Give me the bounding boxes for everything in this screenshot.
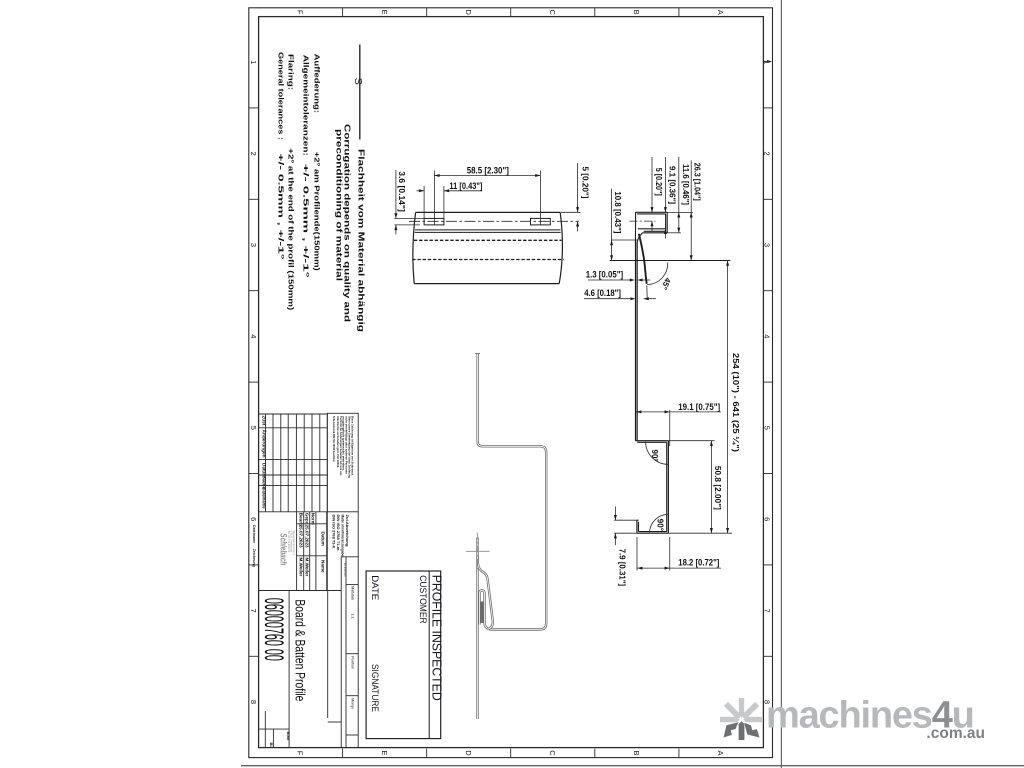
- svg-text:Datum: Datum: [321, 532, 326, 546]
- svg-text:06000760 00: 06000760 00: [259, 598, 289, 661]
- svg-text:Board & Batten Profile: Board & Batten Profile: [293, 599, 308, 701]
- svg-text:4.6 [0.18"]: 4.6 [0.18"]: [584, 288, 621, 299]
- svg-text:Maßstab: Maßstab: [351, 586, 355, 600]
- svg-text:preconditioning of material: preconditioning of material: [335, 129, 344, 281]
- svg-text:Schlebach: Schlebach: [279, 533, 289, 565]
- svg-text:Flaring:: Flaring:: [286, 54, 293, 90]
- svg-text:50.8 [2.00"]: 50.8 [2.00"]: [713, 466, 722, 510]
- svg-text:C: C: [548, 9, 557, 15]
- svg-text:E: E: [380, 10, 389, 15]
- svg-text:.com.au: .com.au: [926, 725, 985, 742]
- svg-text:S: S: [352, 78, 364, 85]
- svg-text:4: 4: [762, 334, 771, 338]
- svg-text:7.9 [0.31"]: 7.9 [0.31"]: [618, 549, 627, 587]
- svg-text:254 (10") - 641 (25 ¼"): 254 (10") - 641 (25 ¼"): [731, 353, 740, 452]
- svg-text:8: 8: [249, 700, 258, 704]
- svg-text:58.5 [2.30"]: 58.5 [2.30"]: [467, 166, 509, 176]
- svg-text:DIN ISO 2768 T2-K: DIN ISO 2768 T2-K: [332, 515, 336, 549]
- svg-text:M.Weiler: M.Weiler: [298, 558, 303, 577]
- svg-text:Name: Name: [321, 560, 326, 573]
- svg-text:A: A: [716, 10, 725, 15]
- svg-text:D: D: [464, 750, 473, 756]
- svg-text:Bl.: Bl.: [269, 743, 274, 748]
- svg-text:DATE: DATE: [370, 575, 380, 600]
- svg-text:5: 5: [762, 426, 771, 430]
- svg-text:F: F: [296, 751, 305, 756]
- svg-text:C: C: [548, 750, 557, 756]
- svg-text:25.07.2023: 25.07.2023: [298, 525, 303, 548]
- svg-text:6: 6: [249, 517, 258, 521]
- svg-text:3: 3: [249, 243, 258, 247]
- svg-text:Änderungen: Änderungen: [262, 430, 268, 458]
- svg-text:General tolerances :: General tolerances :: [277, 52, 284, 140]
- svg-text:3: 3: [762, 243, 771, 247]
- svg-text:26.3 [1.04"]: 26.3 [1.04"]: [692, 163, 701, 201]
- svg-text:SIGNATURE: SIGNATURE: [370, 664, 380, 712]
- svg-text:D: D: [464, 9, 473, 15]
- svg-text:9.1 [0.36"]: 9.1 [0.36"]: [667, 166, 676, 204]
- svg-text:7: 7: [762, 609, 771, 613]
- svg-text:90°: 90°: [650, 450, 659, 462]
- svg-text:Zeichnung: Zeichnung: [252, 549, 256, 567]
- svg-text:M.Weiler: M.Weiler: [343, 563, 347, 578]
- svg-text:DIN ISO 2768 T1-m: DIN ISO 2768 T1-m: [336, 515, 340, 551]
- svg-text:90°: 90°: [656, 519, 665, 531]
- svg-text:A: A: [716, 750, 725, 755]
- svg-text:6: 6: [762, 517, 771, 521]
- svg-text:Gepr.: Gepr.: [304, 513, 309, 525]
- svg-text:11.6 [0.46"]: 11.6 [0.46"]: [681, 164, 690, 205]
- svg-text:Norm: Norm: [310, 513, 315, 525]
- svg-text:1: 1: [762, 60, 771, 64]
- svg-text:M.Weiler: M.Weiler: [304, 558, 309, 577]
- svg-text:Maße ohneToleranzangabe: Maße ohneToleranzangabe: [340, 515, 344, 557]
- svg-text:5 [0.20"]: 5 [0.20"]: [581, 167, 590, 199]
- svg-text:Auffederung:: Auffederung:: [313, 54, 320, 113]
- svg-text:Dateiname: Dateiname: [252, 525, 256, 543]
- svg-text:Zust.: Zust.: [262, 416, 267, 427]
- svg-text:+/- 0.5mm , +/-1°: +/- 0.5mm , +/-1°: [277, 153, 285, 259]
- svg-text:Menge: Menge: [351, 698, 355, 709]
- svg-text:+2° at the end of the profil (: +2° at the end of the profil (150mm): [286, 148, 294, 310]
- svg-text:10.8 [0.43"]: 10.8 [0.43"]: [613, 191, 622, 233]
- svg-text:B: B: [632, 750, 641, 755]
- svg-text:Position: Position: [351, 656, 355, 669]
- svg-text:1:1: 1:1: [351, 614, 355, 619]
- svg-text:PROFILE INSPECTED: PROFILE INSPECTED: [429, 575, 444, 701]
- svg-text:1: 1: [249, 60, 258, 64]
- svg-text:3.6 [0.14"]: 3.6 [0.14"]: [397, 171, 406, 212]
- svg-text:E: E: [380, 750, 389, 755]
- svg-text:5: 5: [249, 426, 258, 430]
- svg-text:Allgemeintoleranzen:: Allgemeintoleranzen:: [301, 55, 308, 156]
- svg-text:2: 2: [249, 152, 258, 156]
- svg-text:Schutzvermerk DIN ISO 16016 be: Schutzvermerk DIN ISO 16016 beachten.: [332, 416, 336, 462]
- svg-text:+2° am Profilende(150mm): +2° am Profilende(150mm): [313, 152, 321, 271]
- svg-text:Zul.Abweichung: Zul.Abweichung: [345, 515, 349, 547]
- svg-text:25.07.2023: 25.07.2023: [304, 525, 309, 548]
- svg-text:Datum: Datum: [262, 463, 267, 477]
- svg-text:Flachheit vom Material abhängi: Flachheit vom Material abhängig: [356, 149, 365, 332]
- svg-text:1.3 [0.05"]: 1.3 [0.05"]: [586, 270, 623, 281]
- svg-text:2: 2: [762, 152, 771, 156]
- svg-text:B: B: [632, 10, 641, 15]
- svg-text:7: 7: [249, 609, 258, 613]
- svg-text:18.2 [0.72"]: 18.2 [0.72"]: [678, 557, 719, 567]
- svg-text:11 [0.43"]: 11 [0.43"]: [449, 181, 482, 191]
- svg-text:CUSTOMER: CUSTOMER: [418, 575, 428, 624]
- svg-text:Dateiname: Dateiname: [262, 488, 267, 509]
- svg-text:5 [0.20"]: 5 [0.20"]: [654, 168, 663, 196]
- svg-text:4: 4: [249, 334, 258, 338]
- svg-text:F: F: [296, 10, 305, 15]
- svg-text:+/- 0.5mm , +/-1°: +/- 0.5mm , +/-1°: [301, 164, 309, 278]
- svg-text:Blatt: Blatt: [286, 732, 291, 742]
- svg-text:19.1 [0.75"]: 19.1 [0.75"]: [678, 402, 720, 412]
